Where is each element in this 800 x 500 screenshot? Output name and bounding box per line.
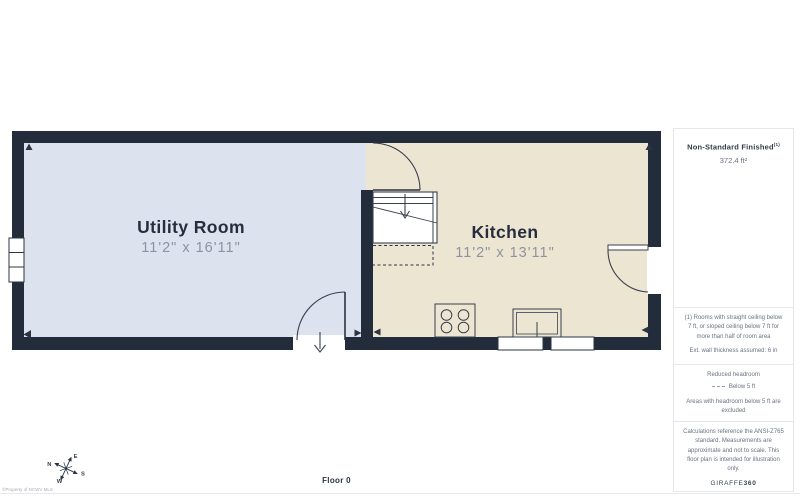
- disclaimer-section: Calculations reference the ANSI-Z765 sta…: [674, 421, 793, 491]
- staircase: [373, 192, 437, 243]
- kitchen-window-2: [551, 337, 594, 350]
- left-window: [9, 238, 24, 282]
- kitchen-door-opening: [647, 247, 662, 294]
- headroom-title: Reduced headroom: [683, 371, 784, 380]
- kitchen-window-1: [498, 337, 543, 350]
- dashed-line-key-icon: [712, 386, 725, 387]
- area-value: 372.4 ft²: [674, 156, 793, 165]
- area-title: Non-Standard Finished(1): [674, 142, 793, 152]
- utility-room-dimensions: 11'2" x 16'11": [141, 240, 240, 256]
- legend-sidebar: Non-Standard Finished(1) 372.4 ft² (1) R…: [673, 128, 794, 492]
- bottom-divider-line: [0, 493, 800, 494]
- floor-label: Floor 0: [12, 476, 661, 485]
- brand-suffix: 360: [744, 480, 757, 487]
- ceiling-footnote: (1) Rooms with straight ceiling below 7 …: [683, 314, 784, 342]
- area-title-text: Non-Standard Finished: [687, 143, 774, 152]
- area-footnote-marker: (1): [774, 142, 780, 147]
- kitchen-dimensions: 11'2" x 13'11": [455, 245, 554, 261]
- kitchen-name: Kitchen: [472, 222, 539, 242]
- kitchen-door-leaf: [608, 245, 648, 250]
- utility-room-name: Utility Room: [137, 217, 245, 237]
- headroom-section: Reduced headroom Below 5 ft Areas with h…: [674, 364, 793, 421]
- compass-north-label: N: [47, 462, 51, 468]
- divider-wall: [361, 190, 373, 337]
- footnote-section: (1) Rooms with straight ceiling below 7 …: [674, 307, 793, 364]
- brand-name: GIRAFFE: [710, 480, 743, 487]
- utility-door-opening: [293, 335, 345, 351]
- wall-thickness-note: Ext. wall thickness assumed: 6 in: [683, 347, 784, 356]
- compass-east-label: E: [74, 454, 78, 460]
- headroom-note: Areas with headroom below 5 ft are exclu…: [683, 398, 784, 417]
- area-summary: Non-Standard Finished(1) 372.4 ft²: [674, 129, 793, 307]
- disclaimer-text: Calculations reference the ANSI-Z765 sta…: [683, 428, 784, 474]
- brand-logo: GIRAFFE360: [683, 479, 784, 489]
- stove-icon: [435, 304, 475, 337]
- floorplan-page: Utility Room 11'2" x 16'11" Kitchen 11'2…: [0, 0, 800, 500]
- headroom-key-row: Below 5 ft: [683, 383, 784, 392]
- copyright-watermark: ©Property of NCWV MLS: [2, 487, 53, 492]
- headroom-key-label: Below 5 ft: [729, 384, 755, 390]
